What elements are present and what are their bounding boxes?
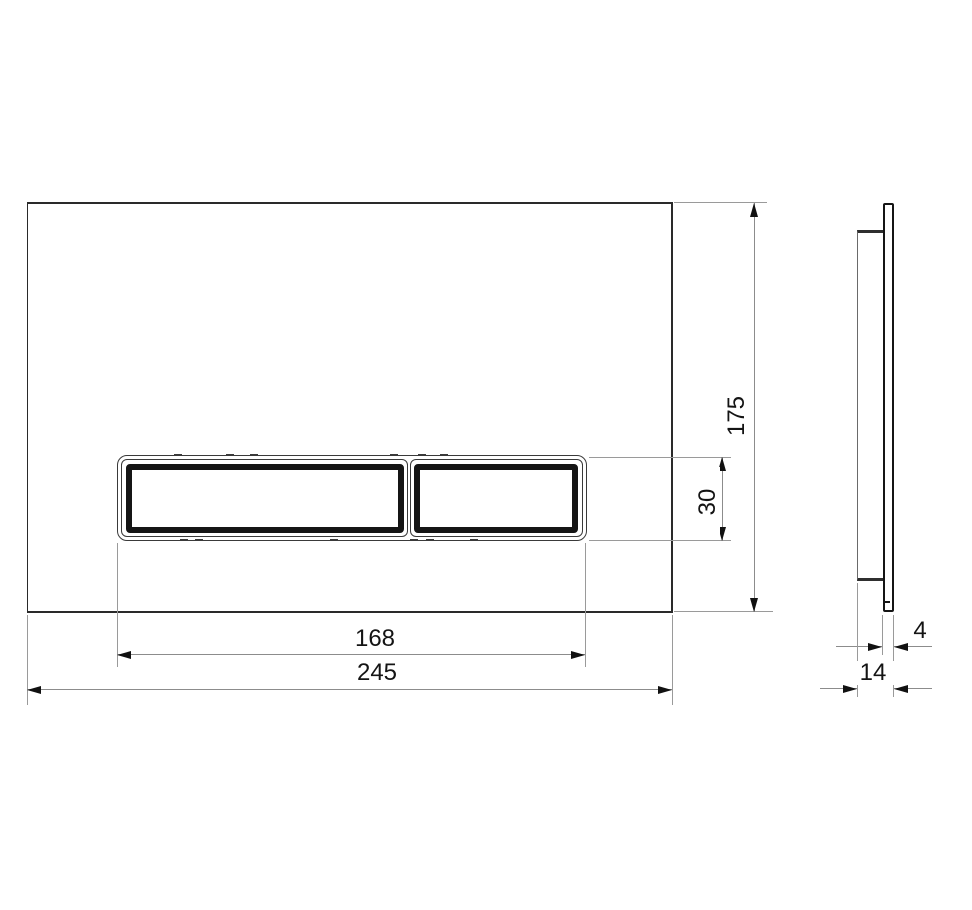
clip-notch xyxy=(180,539,188,541)
arrowhead-175-bottom xyxy=(750,598,758,612)
dim-label-plate-width: 245 xyxy=(342,661,412,685)
ext-line-168-left xyxy=(117,543,118,667)
clip-notch xyxy=(410,539,418,541)
dim-label-button-height: 30 xyxy=(696,467,720,537)
arrowhead-4-left xyxy=(868,643,882,651)
arrowhead-168-left xyxy=(117,651,131,659)
ext-line-plate-bottom xyxy=(674,611,773,612)
arrowhead-4-right xyxy=(894,643,908,651)
dim-line-168 xyxy=(117,654,585,655)
ext-line-168-right xyxy=(585,543,586,667)
dim-line-175 xyxy=(754,203,755,612)
dim-label-plate-height: 175 xyxy=(725,381,749,451)
side-view-panel-step xyxy=(884,601,890,603)
clip-notch xyxy=(390,454,398,456)
front-view-plate xyxy=(27,202,673,613)
side-view-mounting-frame xyxy=(857,230,884,581)
ext-line-245-right xyxy=(672,615,673,705)
ext-line-4-left xyxy=(882,615,883,655)
small-button xyxy=(414,464,578,533)
arrowhead-168-right xyxy=(571,651,585,659)
dim-line-245 xyxy=(27,689,672,690)
clip-notch xyxy=(426,539,434,541)
arrowhead-245-left xyxy=(27,686,41,694)
arrowhead-245-right xyxy=(658,686,672,694)
dim-label-total-depth: 14 xyxy=(848,661,898,685)
side-view-panel xyxy=(883,203,894,612)
large-button xyxy=(126,464,404,533)
dim-label-panel-thickness: 4 xyxy=(900,619,940,643)
clip-notch xyxy=(440,454,448,456)
ext-line-button-bottom xyxy=(589,540,731,541)
arrowhead-14-right xyxy=(894,685,908,693)
clip-notch xyxy=(195,539,203,541)
dim-label-button-width: 168 xyxy=(340,627,410,651)
drawing-canvas: 175 30 168 245 4 14 xyxy=(0,0,972,910)
arrowhead-14-left xyxy=(843,685,857,693)
clip-notch xyxy=(174,454,182,456)
clip-notch xyxy=(470,539,478,541)
clip-notch xyxy=(330,539,338,541)
clip-notch xyxy=(250,454,258,456)
clip-notch xyxy=(226,454,234,456)
clip-notch xyxy=(418,454,426,456)
ext-line-button-top xyxy=(589,457,731,458)
arrowhead-175-top xyxy=(750,203,758,217)
